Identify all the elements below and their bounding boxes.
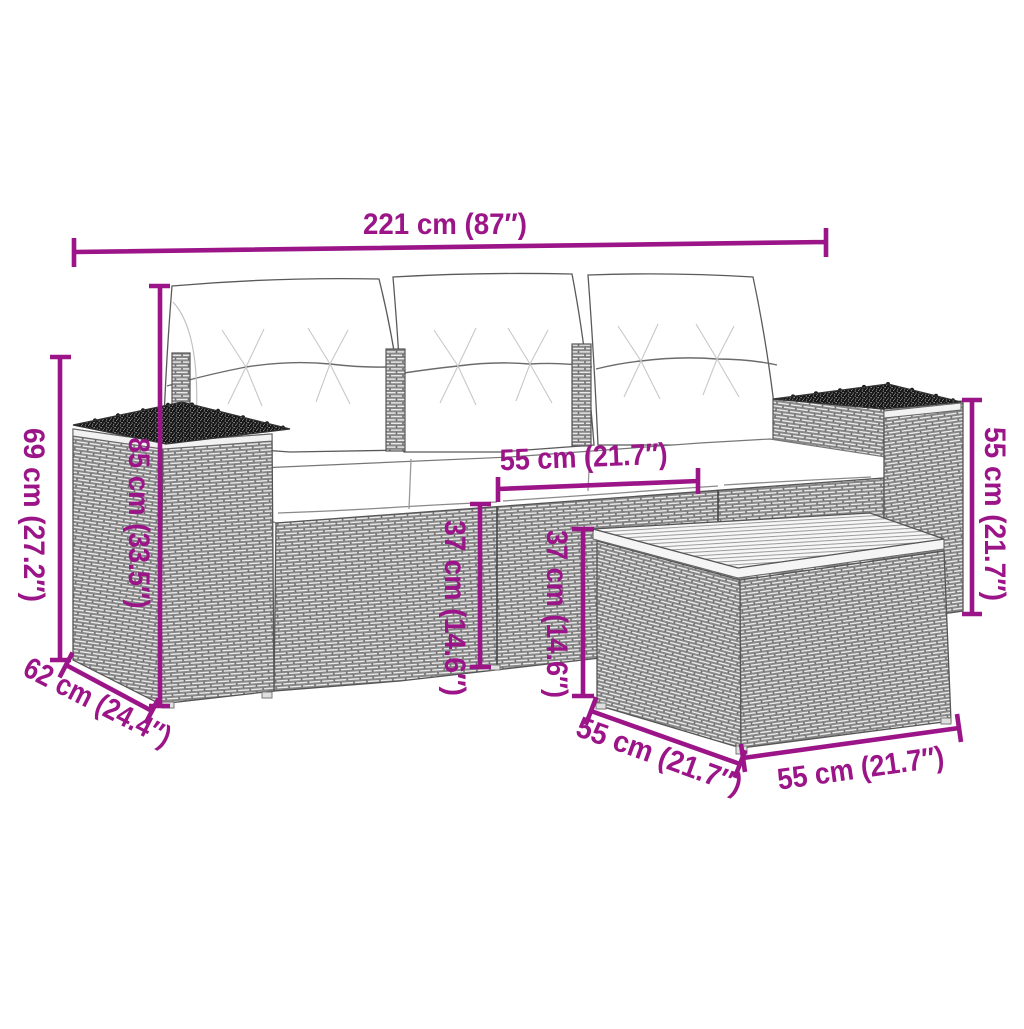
svg-text:55 cm (21.7″): 55 cm (21.7″) bbox=[978, 427, 1011, 601]
svg-text:221 cm (87″): 221 cm (87″) bbox=[363, 208, 527, 241]
svg-text:55 cm (21.7″): 55 cm (21.7″) bbox=[499, 438, 668, 478]
svg-text:37 cm (14.6″): 37 cm (14.6″) bbox=[540, 530, 573, 698]
svg-text:69 cm (27.2″): 69 cm (27.2″) bbox=[17, 428, 50, 602]
svg-text:37 cm (14.6″): 37 cm (14.6″) bbox=[438, 520, 471, 696]
svg-text:85 cm (33.5″): 85 cm (33.5″) bbox=[122, 438, 155, 609]
